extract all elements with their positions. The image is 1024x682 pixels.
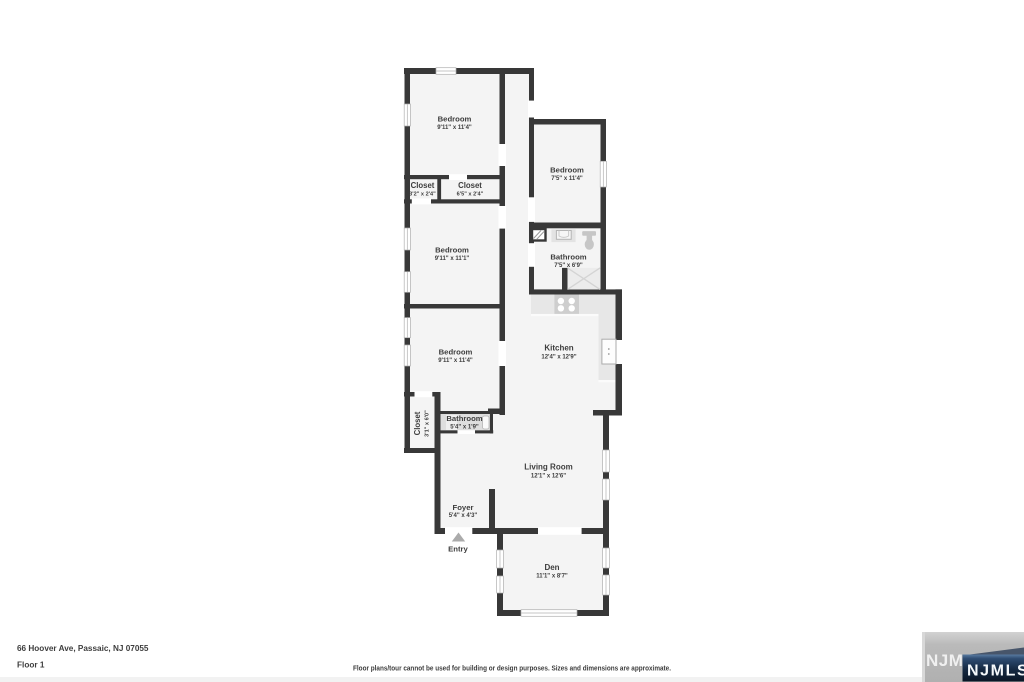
svg-text:7'5" x 6'9": 7'5" x 6'9" [554,263,583,269]
svg-text:Foyer: Foyer [453,503,474,512]
svg-text:Floor 1: Floor 1 [17,660,45,670]
svg-text:Closet: Closet [411,181,435,190]
svg-text:Closet: Closet [413,411,422,435]
svg-text:6'5" x 2'4": 6'5" x 2'4" [457,192,484,198]
svg-text:3'1" x 6'0": 3'1" x 6'0" [425,410,431,437]
svg-text:Bathroom: Bathroom [446,414,482,423]
svg-text:NJMLS: NJMLS [967,663,1024,680]
svg-text:Den: Den [544,563,559,572]
svg-text:Bathroom: Bathroom [550,253,586,262]
svg-text:66 Hoover Ave, Passaic, NJ 070: 66 Hoover Ave, Passaic, NJ 07055 [17,643,149,653]
svg-text:Bedroom: Bedroom [550,166,584,175]
svg-text:Living Room: Living Room [524,463,572,472]
svg-text:Closet: Closet [458,181,482,190]
svg-text:5'4" x 4'3": 5'4" x 4'3" [449,513,478,519]
svg-text:Bedroom: Bedroom [438,115,472,124]
svg-text:Entry: Entry [448,545,468,554]
svg-text:11'1" x 8'7": 11'1" x 8'7" [536,574,568,580]
svg-text:Kitchen: Kitchen [544,344,573,353]
svg-text:12'1" x 12'6": 12'1" x 12'6" [531,474,566,480]
svg-text:9'11" x 11'1": 9'11" x 11'1" [435,256,470,262]
svg-text:Bedroom: Bedroom [439,348,473,357]
svg-text:9'11" x 11'4": 9'11" x 11'4" [438,358,473,364]
svg-text:3'2" x 2'4": 3'2" x 2'4" [409,192,436,198]
svg-text:7'5" x 11'4": 7'5" x 11'4" [551,176,583,182]
svg-text:Floor plans/tour cannot be use: Floor plans/tour cannot be used for buil… [353,665,671,672]
svg-text:9'11" x 11'4": 9'11" x 11'4" [437,125,472,131]
svg-text:Bedroom: Bedroom [435,246,469,255]
svg-text:5'4" x 1'9": 5'4" x 1'9" [450,424,479,430]
svg-text:12'4" x 12'9": 12'4" x 12'9" [541,355,576,361]
